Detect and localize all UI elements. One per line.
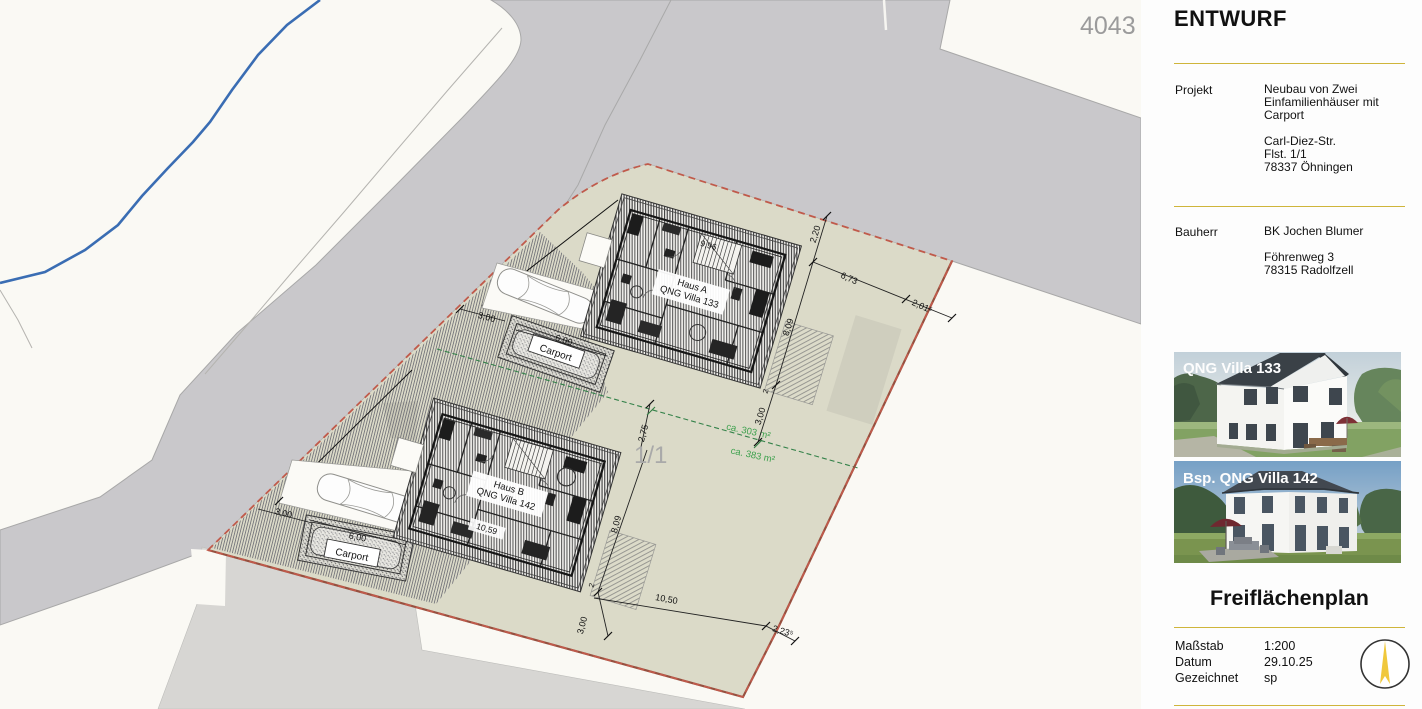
svg-text:4043: 4043 bbox=[1080, 12, 1136, 40]
svg-text:Bsp. QNG Villa 142: Bsp. QNG Villa 142 bbox=[1183, 470, 1318, 487]
svg-text:QNG Villa 133: QNG Villa 133 bbox=[1183, 360, 1281, 377]
svg-text:1/1: 1/1 bbox=[634, 442, 667, 469]
